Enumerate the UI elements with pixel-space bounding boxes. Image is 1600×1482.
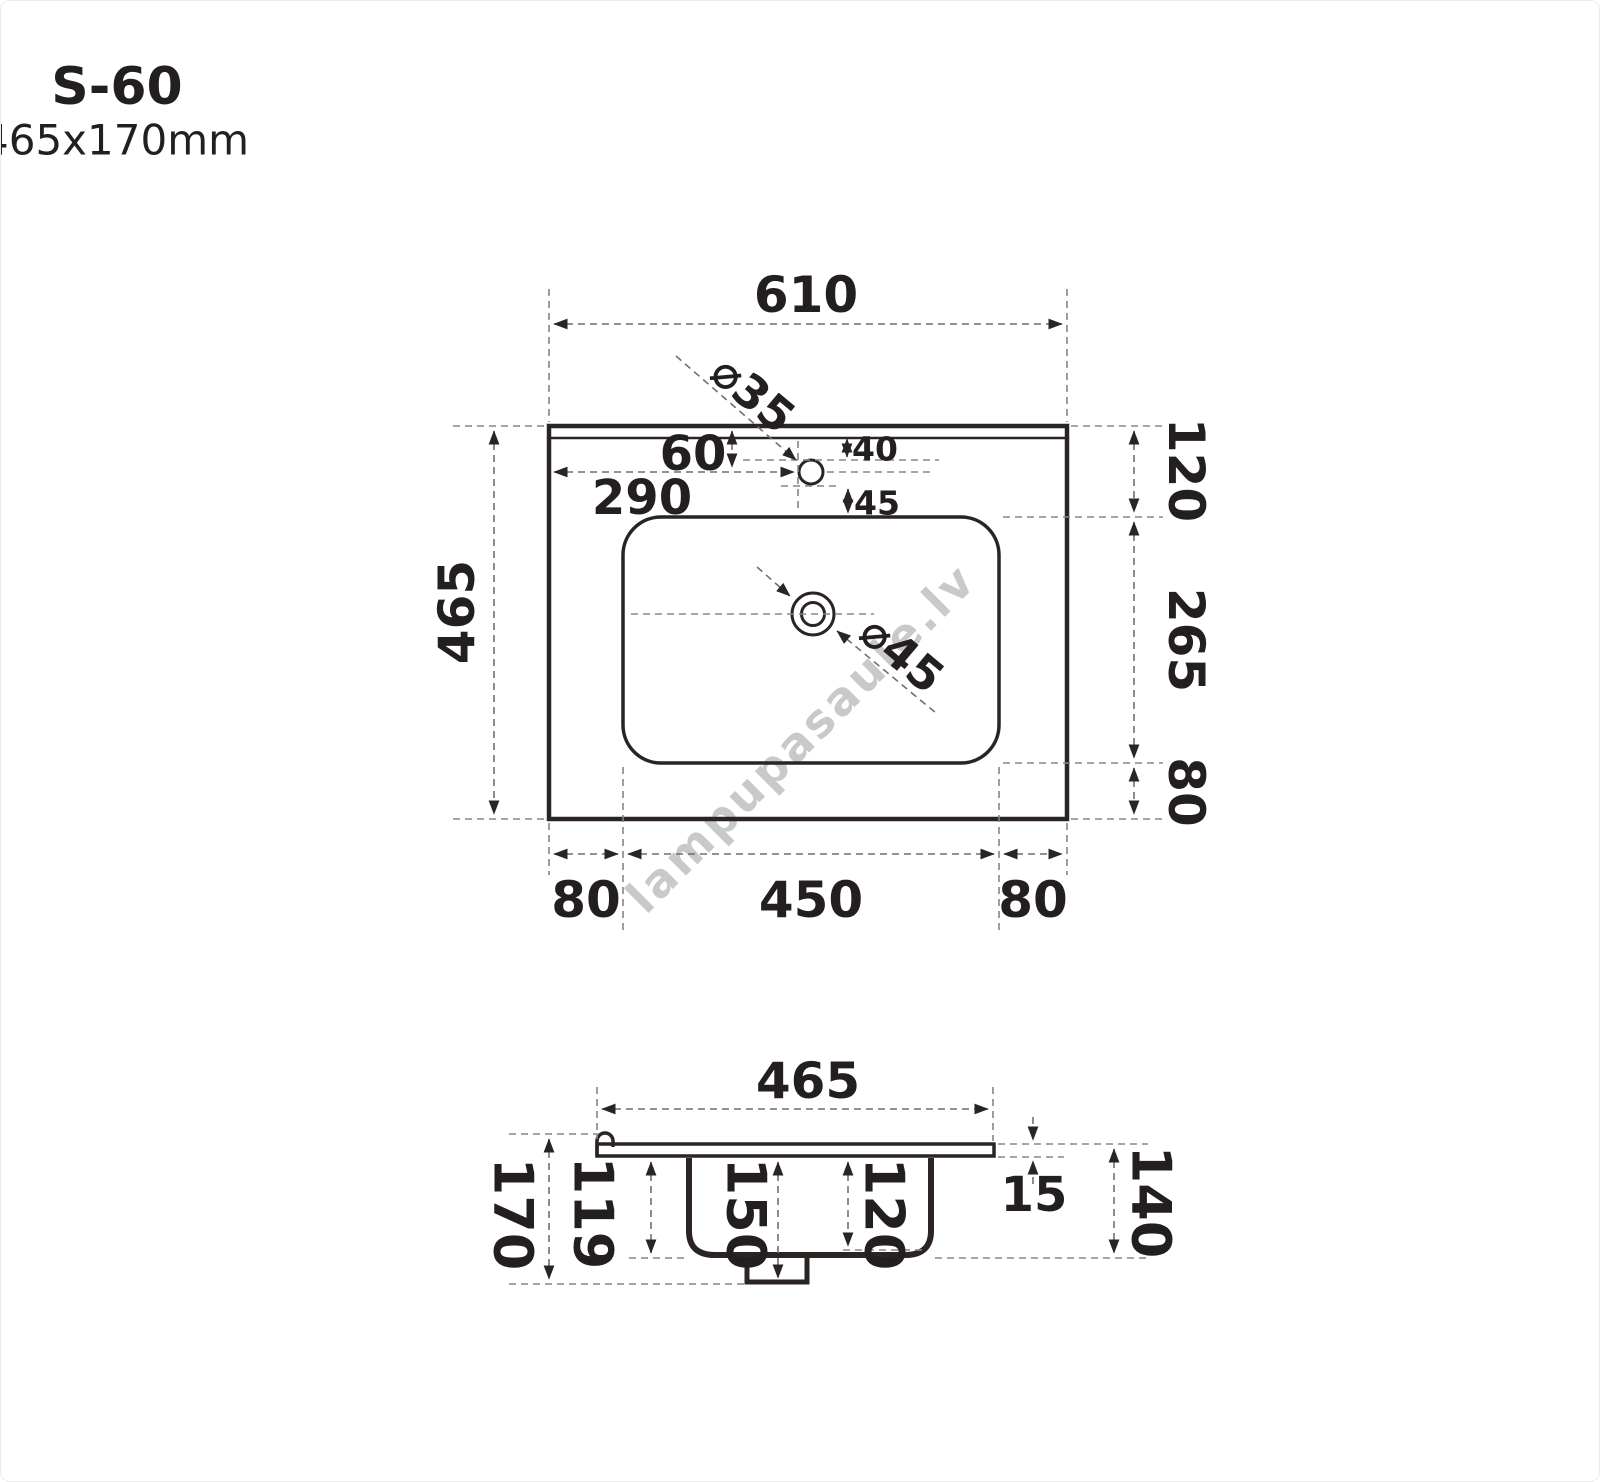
dim-60: 60	[660, 426, 727, 482]
drawing-page: S-60 610x465x170mm lampupasaule.lv 610 4…	[0, 0, 1600, 1482]
dim-465: 465	[428, 560, 486, 664]
dim-80-right: 80	[1157, 757, 1215, 827]
dim-120: 120	[1157, 418, 1215, 522]
dim-450: 450	[759, 871, 863, 929]
dim-610: 610	[754, 266, 858, 324]
dim-465-side: 465	[756, 1052, 860, 1110]
side-view: 465 170 119 150 120 15	[482, 1052, 1183, 1284]
leader-drain-upper	[757, 567, 790, 596]
dim-80-bottom-right: 80	[998, 871, 1068, 929]
dim-80-bottom-left: 80	[551, 871, 621, 929]
dim-150: 150	[715, 1158, 778, 1271]
faucet-hole	[799, 460, 823, 484]
dim-120-side: 120	[853, 1158, 916, 1271]
dim-45: 45	[854, 484, 900, 523]
model-title: S-60	[51, 57, 182, 117]
dim-140: 140	[1120, 1146, 1183, 1259]
dim-170: 170	[482, 1158, 545, 1271]
dim-119: 119	[562, 1157, 625, 1270]
dim-40: 40	[852, 430, 898, 469]
dim-15: 15	[1001, 1167, 1068, 1223]
top-view: 610 465 120 265 80 80	[428, 266, 1215, 935]
dim-265: 265	[1157, 588, 1215, 692]
overall-dimensions: 610x465x170mm	[1, 116, 249, 165]
watermark-text: lampupasaule.lv	[615, 552, 986, 923]
slab-outline	[597, 1144, 994, 1156]
sink-technical-drawing: S-60 610x465x170mm lampupasaule.lv 610 4…	[1, 1, 1600, 1482]
